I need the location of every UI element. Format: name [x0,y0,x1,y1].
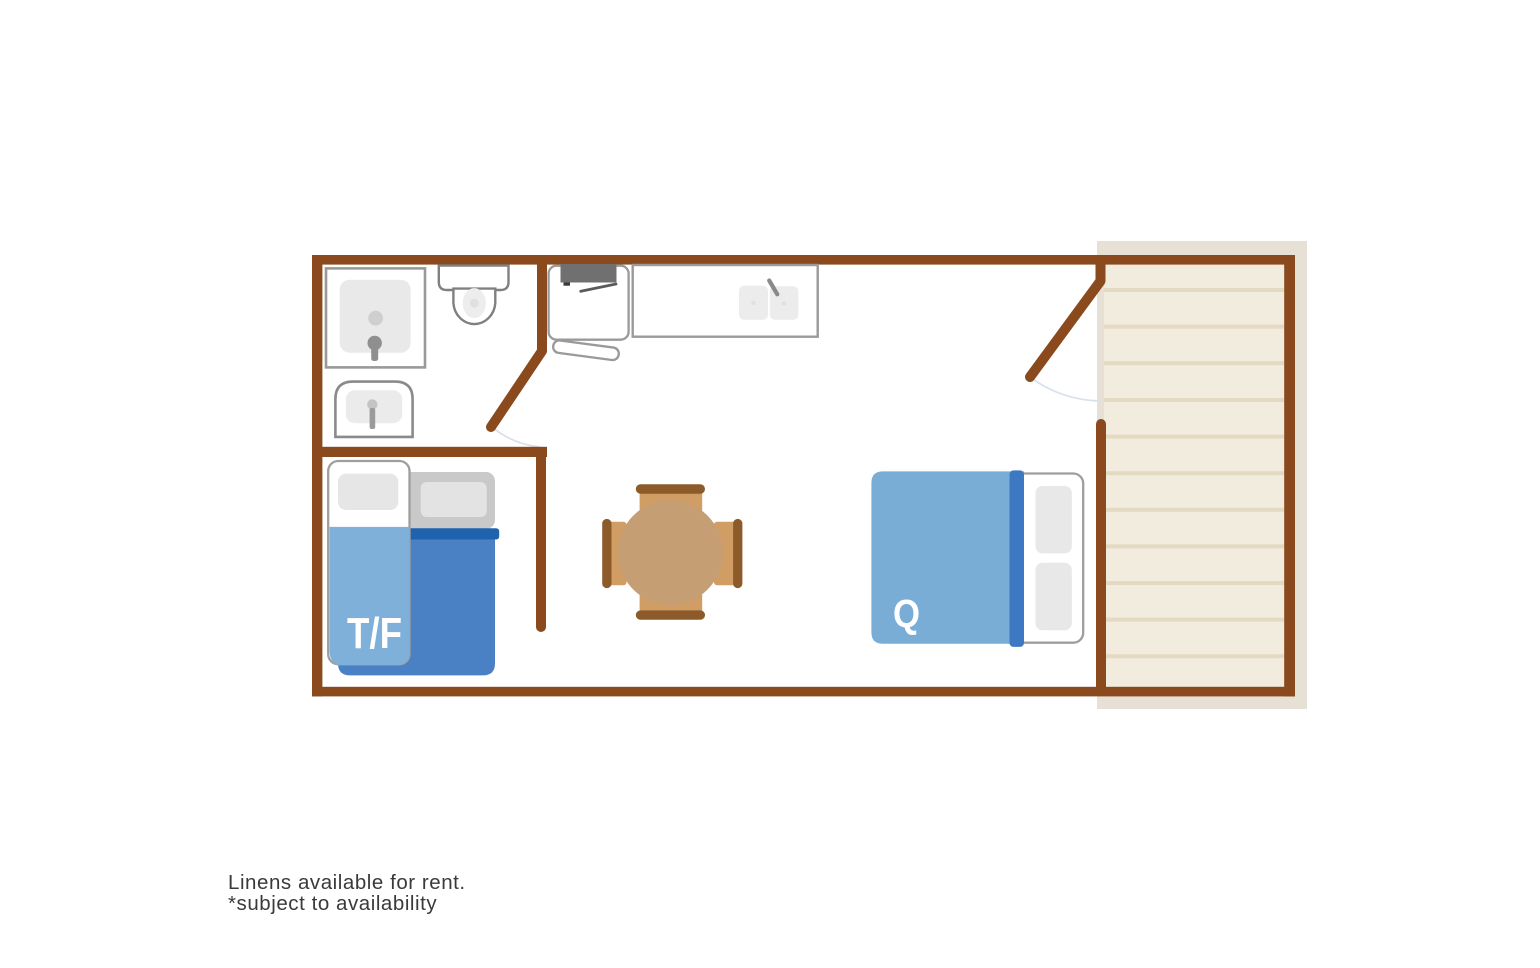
svg-text:T/F: T/F [347,609,402,658]
svg-text:Linens available for rent.: Linens available for rent. [228,871,466,894]
svg-text:Q: Q [893,592,920,636]
svg-text:*subject to availability: *subject to availability [228,892,437,915]
